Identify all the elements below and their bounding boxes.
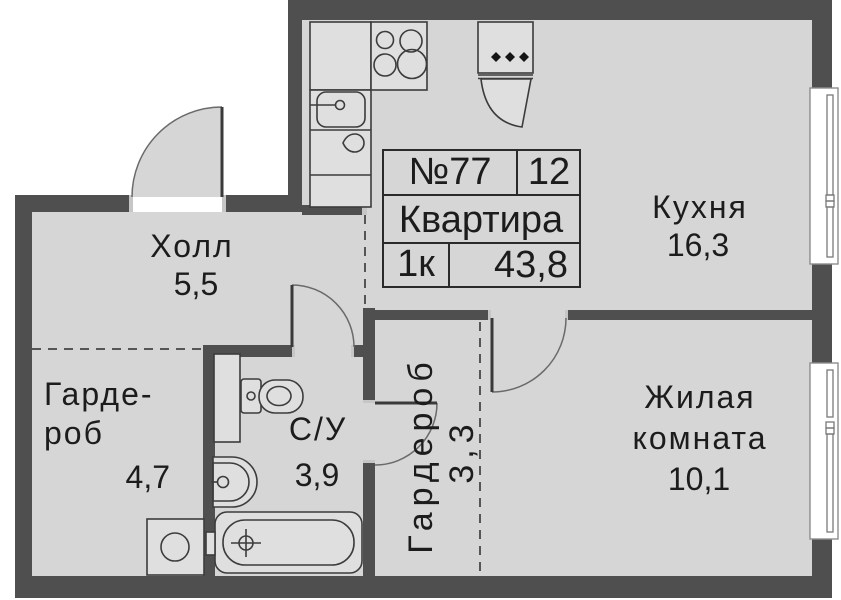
wardrobe-center-name: Гардероб [402,356,440,554]
kitchen-area: 16,3 [667,227,729,263]
position-number: 12 [528,151,570,193]
window-living-room [810,363,838,539]
wardrobe-left-name-line1: Гарде- [44,376,154,412]
living-room-name-line1: Жилая [644,379,755,415]
total-area: 43,8 [494,244,568,286]
wardrobe-left-area: 4,7 [126,459,170,495]
entrance-door-swing-area [132,107,222,197]
floor-plan: №77 12 Квартира 1к 43,8 Холл 5,5 Кухня 1… [0,0,841,600]
hall-name: Холл [150,228,233,264]
bathroom-area: 3,9 [295,457,339,493]
wardrobe-center-area: 3,3 [443,418,481,483]
bathtub-icon [206,512,362,573]
rooms-count: 1к [397,243,435,285]
living-room-area: 10,1 [668,461,730,497]
bathroom-name: С/У [289,411,347,447]
toilet-icon [241,379,303,413]
washing-machine-icon [147,519,204,575]
kitchen-name: Кухня [652,189,748,225]
window-kitchen [810,88,838,264]
stove-icon [371,22,427,90]
apartment-type-label: Квартира [399,199,564,241]
washbasin-icon [211,457,257,507]
hall-area: 5,5 [174,266,218,302]
apartment-number: №77 [408,151,491,193]
duct-box [214,354,240,442]
living-room-name-line2: комната [632,420,767,456]
wardrobe-left-name-line2: роб [44,415,104,451]
